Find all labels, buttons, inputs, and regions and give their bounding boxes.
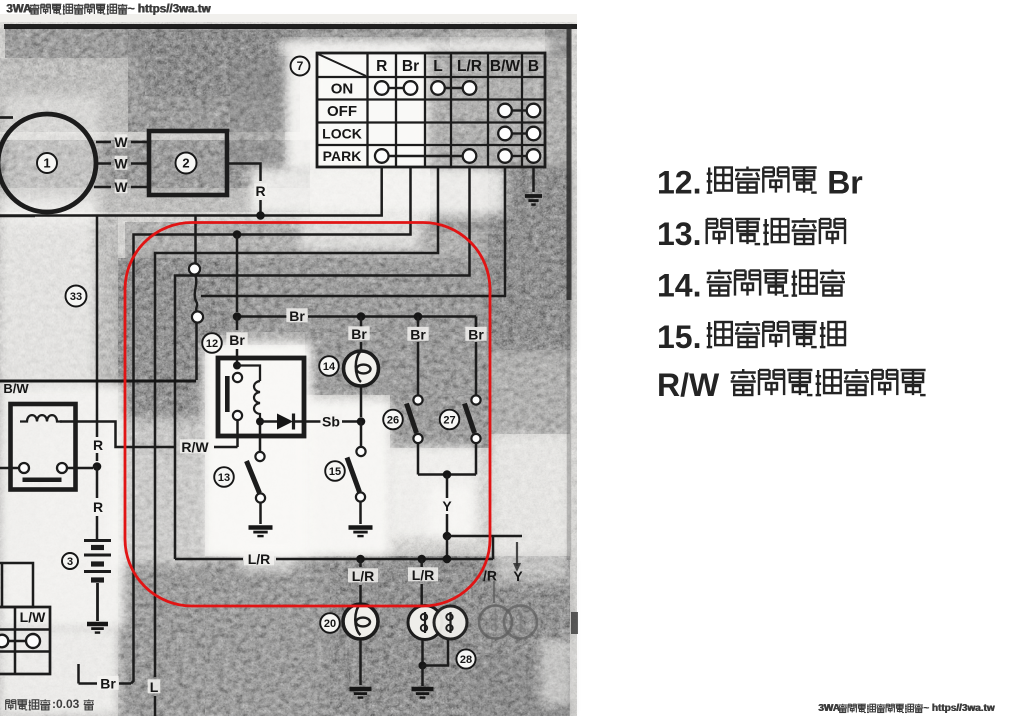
svg-text:W: W bbox=[114, 156, 128, 172]
svg-text:2: 2 bbox=[182, 156, 189, 171]
svg-text:L: L bbox=[433, 58, 442, 75]
svg-text:27: 27 bbox=[443, 414, 455, 426]
svg-text:LOCK: LOCK bbox=[322, 126, 362, 142]
svg-text:Br: Br bbox=[351, 326, 367, 342]
svg-text:OFF: OFF bbox=[327, 103, 357, 120]
svg-text:3WA: 3WA bbox=[819, 703, 841, 714]
svg-text:20: 20 bbox=[324, 618, 336, 630]
svg-text:L: L bbox=[150, 679, 159, 695]
svg-text:R: R bbox=[93, 499, 103, 515]
svg-text:L/R: L/R bbox=[352, 568, 375, 584]
svg-text:B/W: B/W bbox=[3, 381, 29, 396]
svg-text:14: 14 bbox=[323, 361, 336, 373]
svg-text:R: R bbox=[255, 183, 265, 199]
svg-text:Y: Y bbox=[513, 568, 523, 584]
svg-text:W: W bbox=[114, 134, 128, 150]
svg-text:15.: 15. bbox=[657, 319, 701, 355]
svg-text:R/W: R/W bbox=[181, 439, 209, 455]
svg-text:Br: Br bbox=[289, 308, 305, 324]
svg-text:~ https//3wa.tw: ~ https//3wa.tw bbox=[924, 703, 996, 714]
svg-text:26: 26 bbox=[387, 414, 399, 426]
svg-text:12.: 12. bbox=[657, 165, 701, 201]
svg-text:Br: Br bbox=[468, 327, 484, 343]
svg-text:~ https//3wa.tw: ~ https//3wa.tw bbox=[128, 2, 212, 15]
svg-text:R/W: R/W bbox=[657, 367, 720, 403]
svg-text:Br: Br bbox=[100, 676, 116, 692]
svg-text:Br: Br bbox=[827, 165, 863, 201]
svg-text:ON: ON bbox=[331, 80, 354, 97]
svg-text:13: 13 bbox=[218, 472, 230, 484]
svg-text:15: 15 bbox=[329, 466, 341, 478]
svg-text:PARK: PARK bbox=[323, 148, 362, 164]
svg-text:33: 33 bbox=[70, 291, 82, 303]
svg-text::0.03: :0.03 bbox=[52, 697, 80, 711]
svg-text:Sb: Sb bbox=[322, 414, 340, 430]
svg-text:Br: Br bbox=[402, 58, 419, 75]
svg-text:3: 3 bbox=[67, 556, 73, 568]
svg-text:/R: /R bbox=[483, 568, 497, 584]
svg-text:B/W: B/W bbox=[490, 58, 521, 75]
svg-text:1: 1 bbox=[43, 156, 50, 171]
svg-text:13.: 13. bbox=[657, 216, 701, 252]
svg-text:Y: Y bbox=[442, 498, 452, 514]
svg-text:Br: Br bbox=[229, 332, 245, 348]
svg-text:12: 12 bbox=[206, 338, 218, 350]
svg-text:L/W: L/W bbox=[20, 609, 46, 625]
svg-text:R: R bbox=[376, 58, 387, 75]
svg-text:L/R: L/R bbox=[412, 567, 435, 583]
svg-text:3WA: 3WA bbox=[7, 2, 33, 15]
svg-text:R: R bbox=[93, 437, 103, 453]
svg-text:B: B bbox=[528, 58, 539, 75]
svg-text:Br: Br bbox=[410, 327, 426, 343]
svg-text:L/R: L/R bbox=[248, 551, 271, 567]
svg-text:14.: 14. bbox=[657, 268, 701, 304]
svg-text:28: 28 bbox=[460, 654, 472, 666]
svg-text:W: W bbox=[114, 179, 128, 195]
svg-text:L/R: L/R bbox=[457, 58, 482, 75]
svg-text:7: 7 bbox=[297, 59, 304, 73]
